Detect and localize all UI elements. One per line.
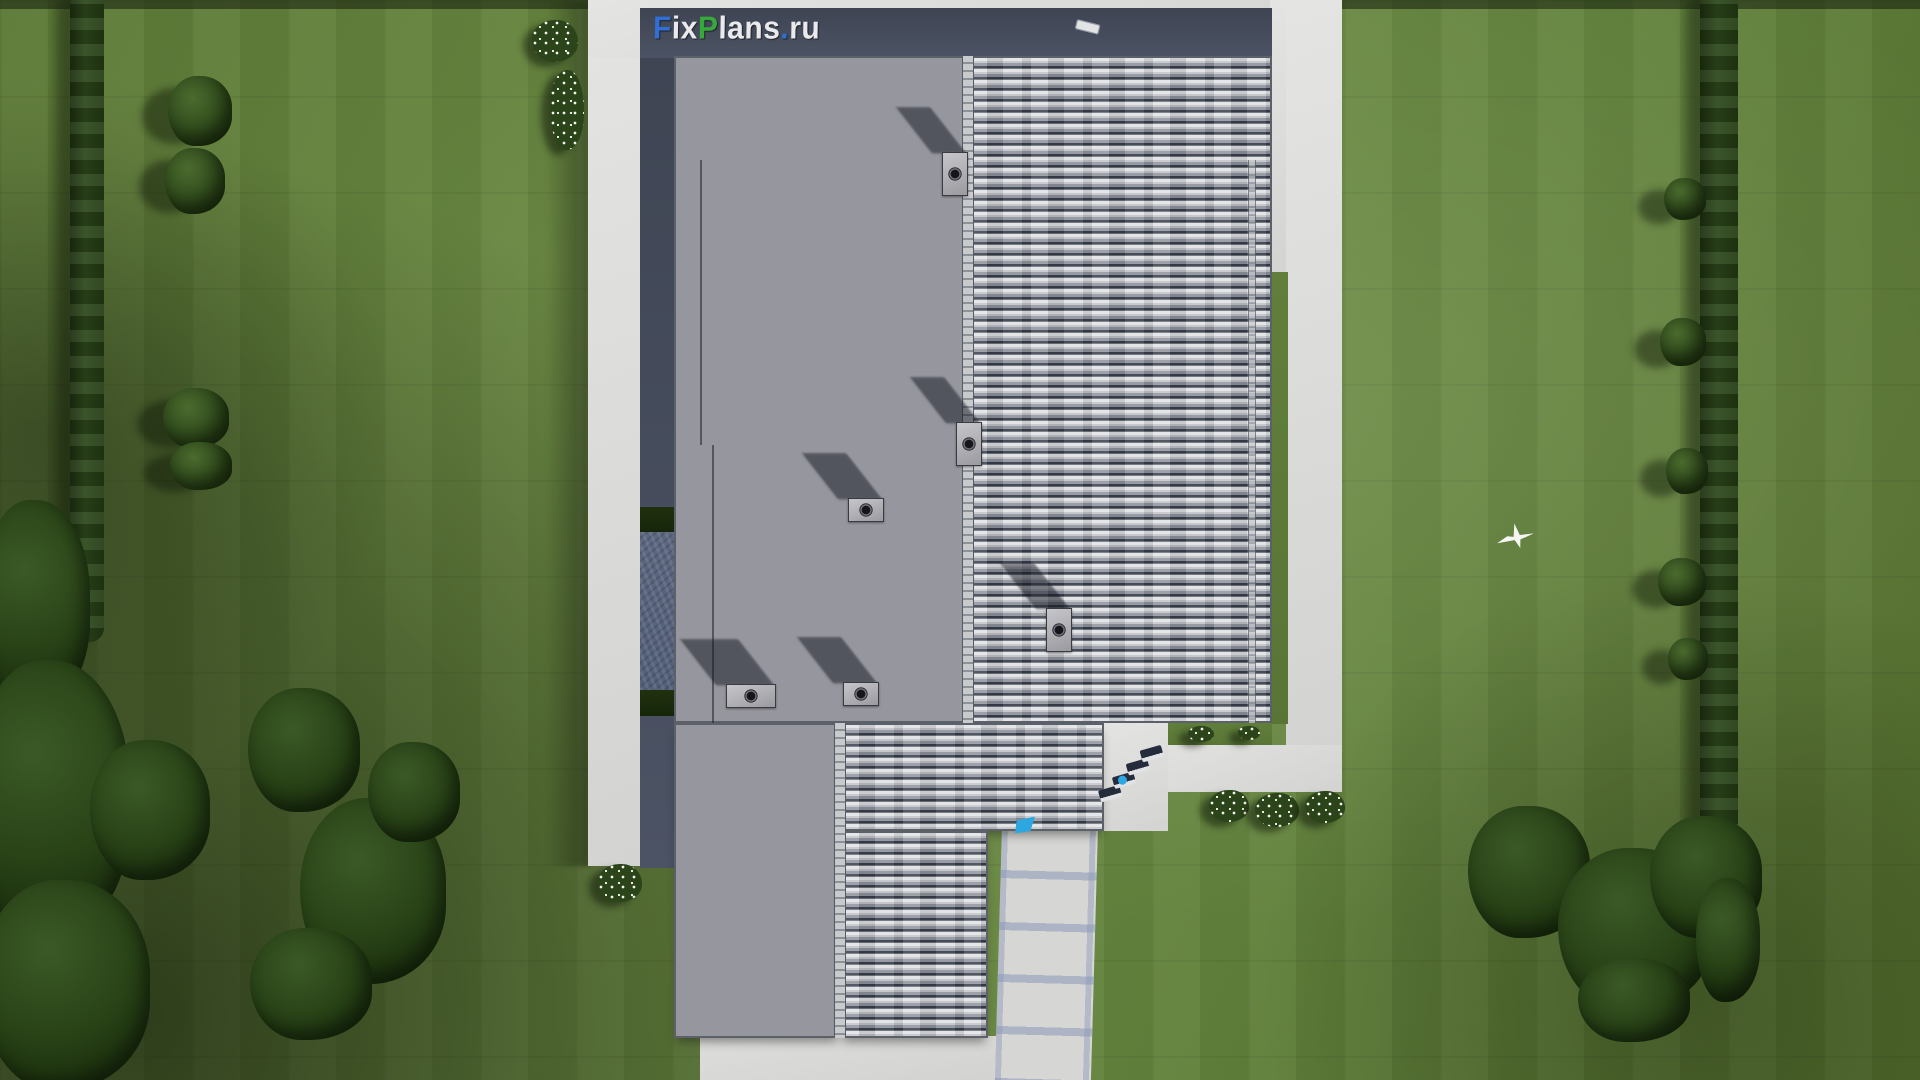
roof-vent-stack xyxy=(843,682,879,706)
flower-bed xyxy=(1255,793,1299,827)
flower-bed xyxy=(1209,790,1249,822)
tree xyxy=(250,928,372,1040)
vent-body xyxy=(956,422,982,466)
tree xyxy=(1668,638,1708,680)
tree xyxy=(90,740,210,880)
tree xyxy=(0,880,150,1080)
logo-watermark: FixPlans.ru xyxy=(653,11,821,47)
vent-pipe xyxy=(962,437,976,451)
roof-vent-stack xyxy=(726,684,776,708)
vent-pipe xyxy=(854,687,868,701)
tree xyxy=(165,148,225,214)
roof-valley-line xyxy=(700,160,702,445)
hedge-right xyxy=(1700,0,1738,892)
tree xyxy=(1664,178,1706,220)
vent-body xyxy=(848,498,884,522)
aerial-render: FixPlans.ru xyxy=(0,0,1920,1080)
sun-lounger xyxy=(1140,745,1164,763)
roof-right-ribbed xyxy=(968,56,1272,723)
planter xyxy=(640,690,674,716)
vent-pipe xyxy=(744,689,758,703)
roof-vent-stack xyxy=(942,152,968,196)
tree xyxy=(170,442,232,490)
logo-letter: ix xyxy=(672,11,699,46)
vent-pipe xyxy=(859,503,873,517)
flower-bed xyxy=(1238,726,1260,740)
lawn-strip-right xyxy=(1270,272,1288,724)
logo-letter: ru xyxy=(789,11,821,46)
paving-apron-left xyxy=(588,0,645,866)
flower-bed xyxy=(598,864,642,902)
vent-body xyxy=(843,682,879,706)
vent-body xyxy=(942,152,968,196)
vent-body xyxy=(1046,608,1072,652)
logo-letter: lans xyxy=(718,11,781,46)
vent-pipe xyxy=(948,167,962,181)
paving-apron-right xyxy=(1286,0,1342,748)
tree xyxy=(1660,318,1706,366)
roof-extension-shingle xyxy=(674,723,840,1038)
walkway-slabs xyxy=(995,826,1098,1080)
vent-body xyxy=(726,684,776,708)
tree xyxy=(368,742,460,842)
flower-bed xyxy=(1305,791,1345,823)
parapet-left xyxy=(640,8,674,868)
tree xyxy=(163,388,229,448)
side-deck-blue xyxy=(640,531,674,691)
logo-letter: F xyxy=(653,11,672,46)
roof-vent-stack xyxy=(956,422,982,466)
planter xyxy=(640,507,674,532)
concrete-pad-bottom xyxy=(700,1036,1014,1080)
ridge-cap-right xyxy=(1248,160,1256,723)
flower-bed xyxy=(1188,726,1214,742)
tree xyxy=(168,76,232,146)
flower-bed xyxy=(532,20,578,62)
roof-vent-stack xyxy=(1046,608,1072,652)
tree xyxy=(1696,878,1760,1002)
roof-extension-ribbed xyxy=(840,831,988,1038)
roof-step-ribbed xyxy=(840,723,1104,831)
tree xyxy=(1578,958,1690,1042)
roof-vent-stack xyxy=(848,498,884,522)
flower-bed xyxy=(550,70,584,150)
tree xyxy=(248,688,360,812)
logo-letter: P xyxy=(698,11,719,46)
tree xyxy=(1658,558,1706,606)
tree xyxy=(1666,448,1708,494)
ridge-cap-extension xyxy=(834,723,846,1038)
vent-pipe xyxy=(1052,623,1066,637)
